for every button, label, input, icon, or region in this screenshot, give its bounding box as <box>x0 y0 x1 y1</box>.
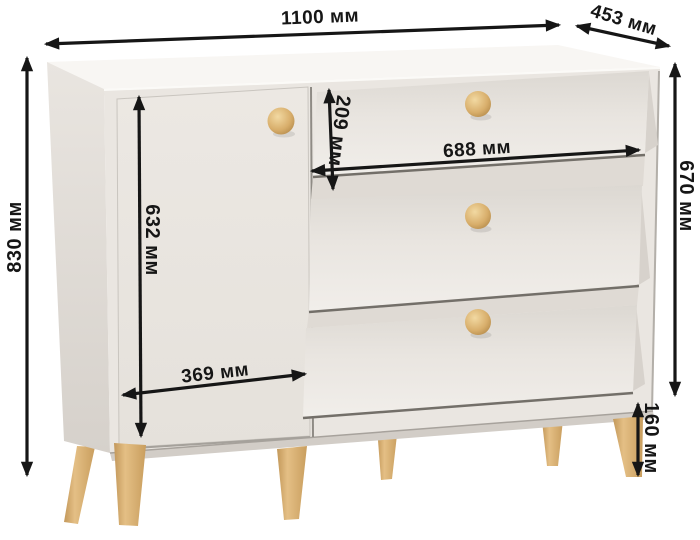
drawer-2-knob <box>465 203 491 229</box>
drawer-1-knob <box>465 91 491 117</box>
dim-line-door-height-632 <box>139 97 141 436</box>
dim-label-width-1100: 1100 мм <box>281 5 360 29</box>
dim-label-leg-height-160: 160 мм <box>640 402 662 474</box>
dim-label-door-height-632: 632 мм <box>141 204 163 276</box>
dim-label-height-830: 830 мм <box>4 201 26 273</box>
leg-front-left <box>114 443 146 526</box>
door-knob <box>268 108 295 135</box>
drawer-3-knob <box>465 309 491 335</box>
dim-label-depth-453: 453 мм <box>588 1 659 40</box>
dim-label-height-670: 670 мм <box>675 160 697 232</box>
furniture-dimension-diagram: 1100 мм 453 мм 830 мм 670 мм 632 мм 209 … <box>0 0 700 540</box>
cabinet-left-side <box>47 62 110 453</box>
leg-back-left <box>64 446 95 524</box>
diagram-canvas: 1100 мм 453 мм 830 мм 670 мм 632 мм 209 … <box>0 0 700 540</box>
leg-front-middle <box>277 446 307 520</box>
